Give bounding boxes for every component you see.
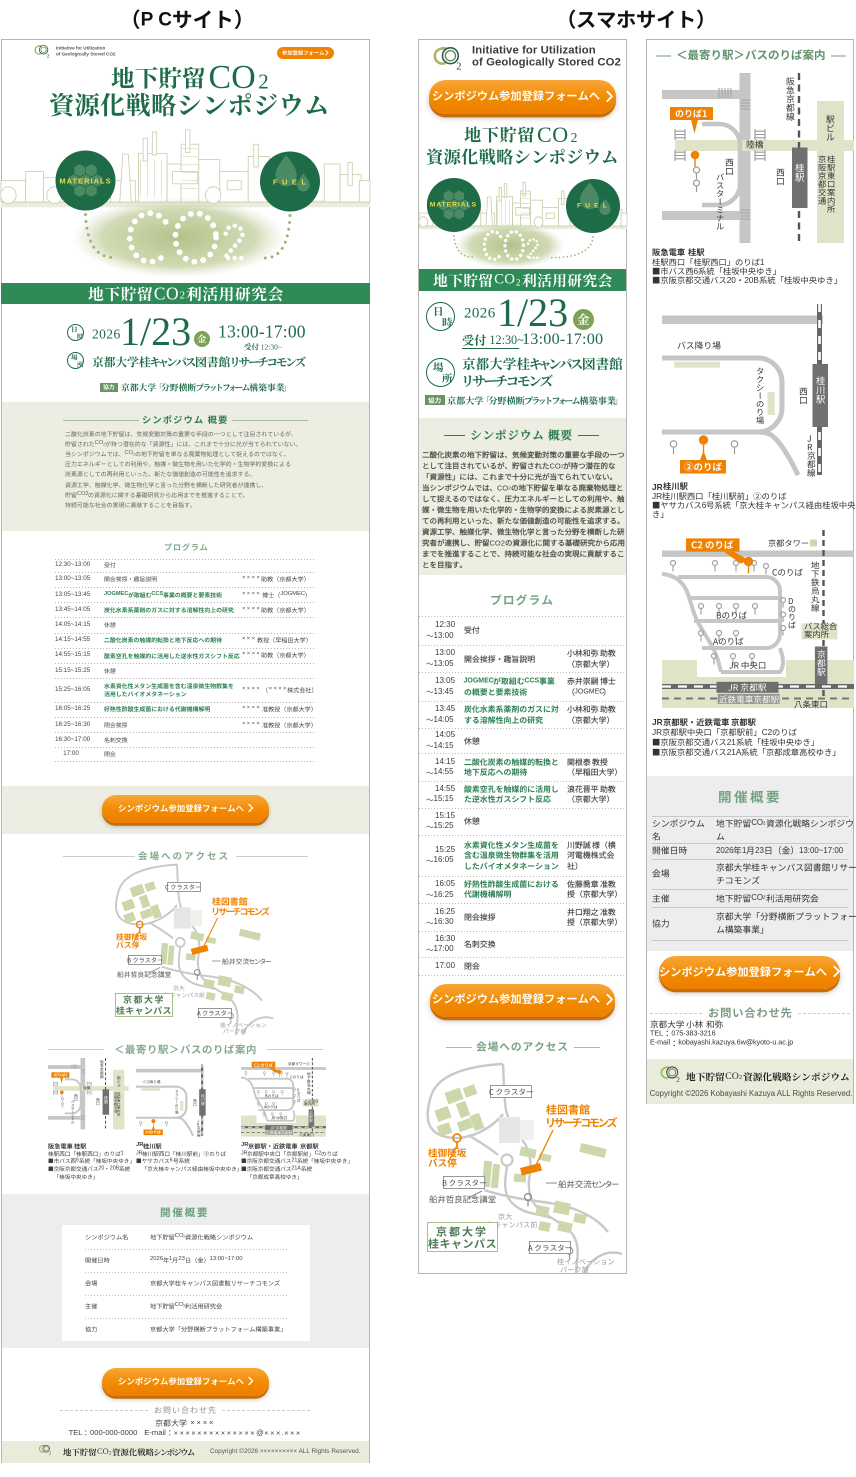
svg-text:2: 2 xyxy=(49,1451,51,1456)
svg-text:2: 2 xyxy=(456,62,461,73)
svg-text:2: 2 xyxy=(676,1076,680,1084)
svg-text:2: 2 xyxy=(47,53,50,59)
